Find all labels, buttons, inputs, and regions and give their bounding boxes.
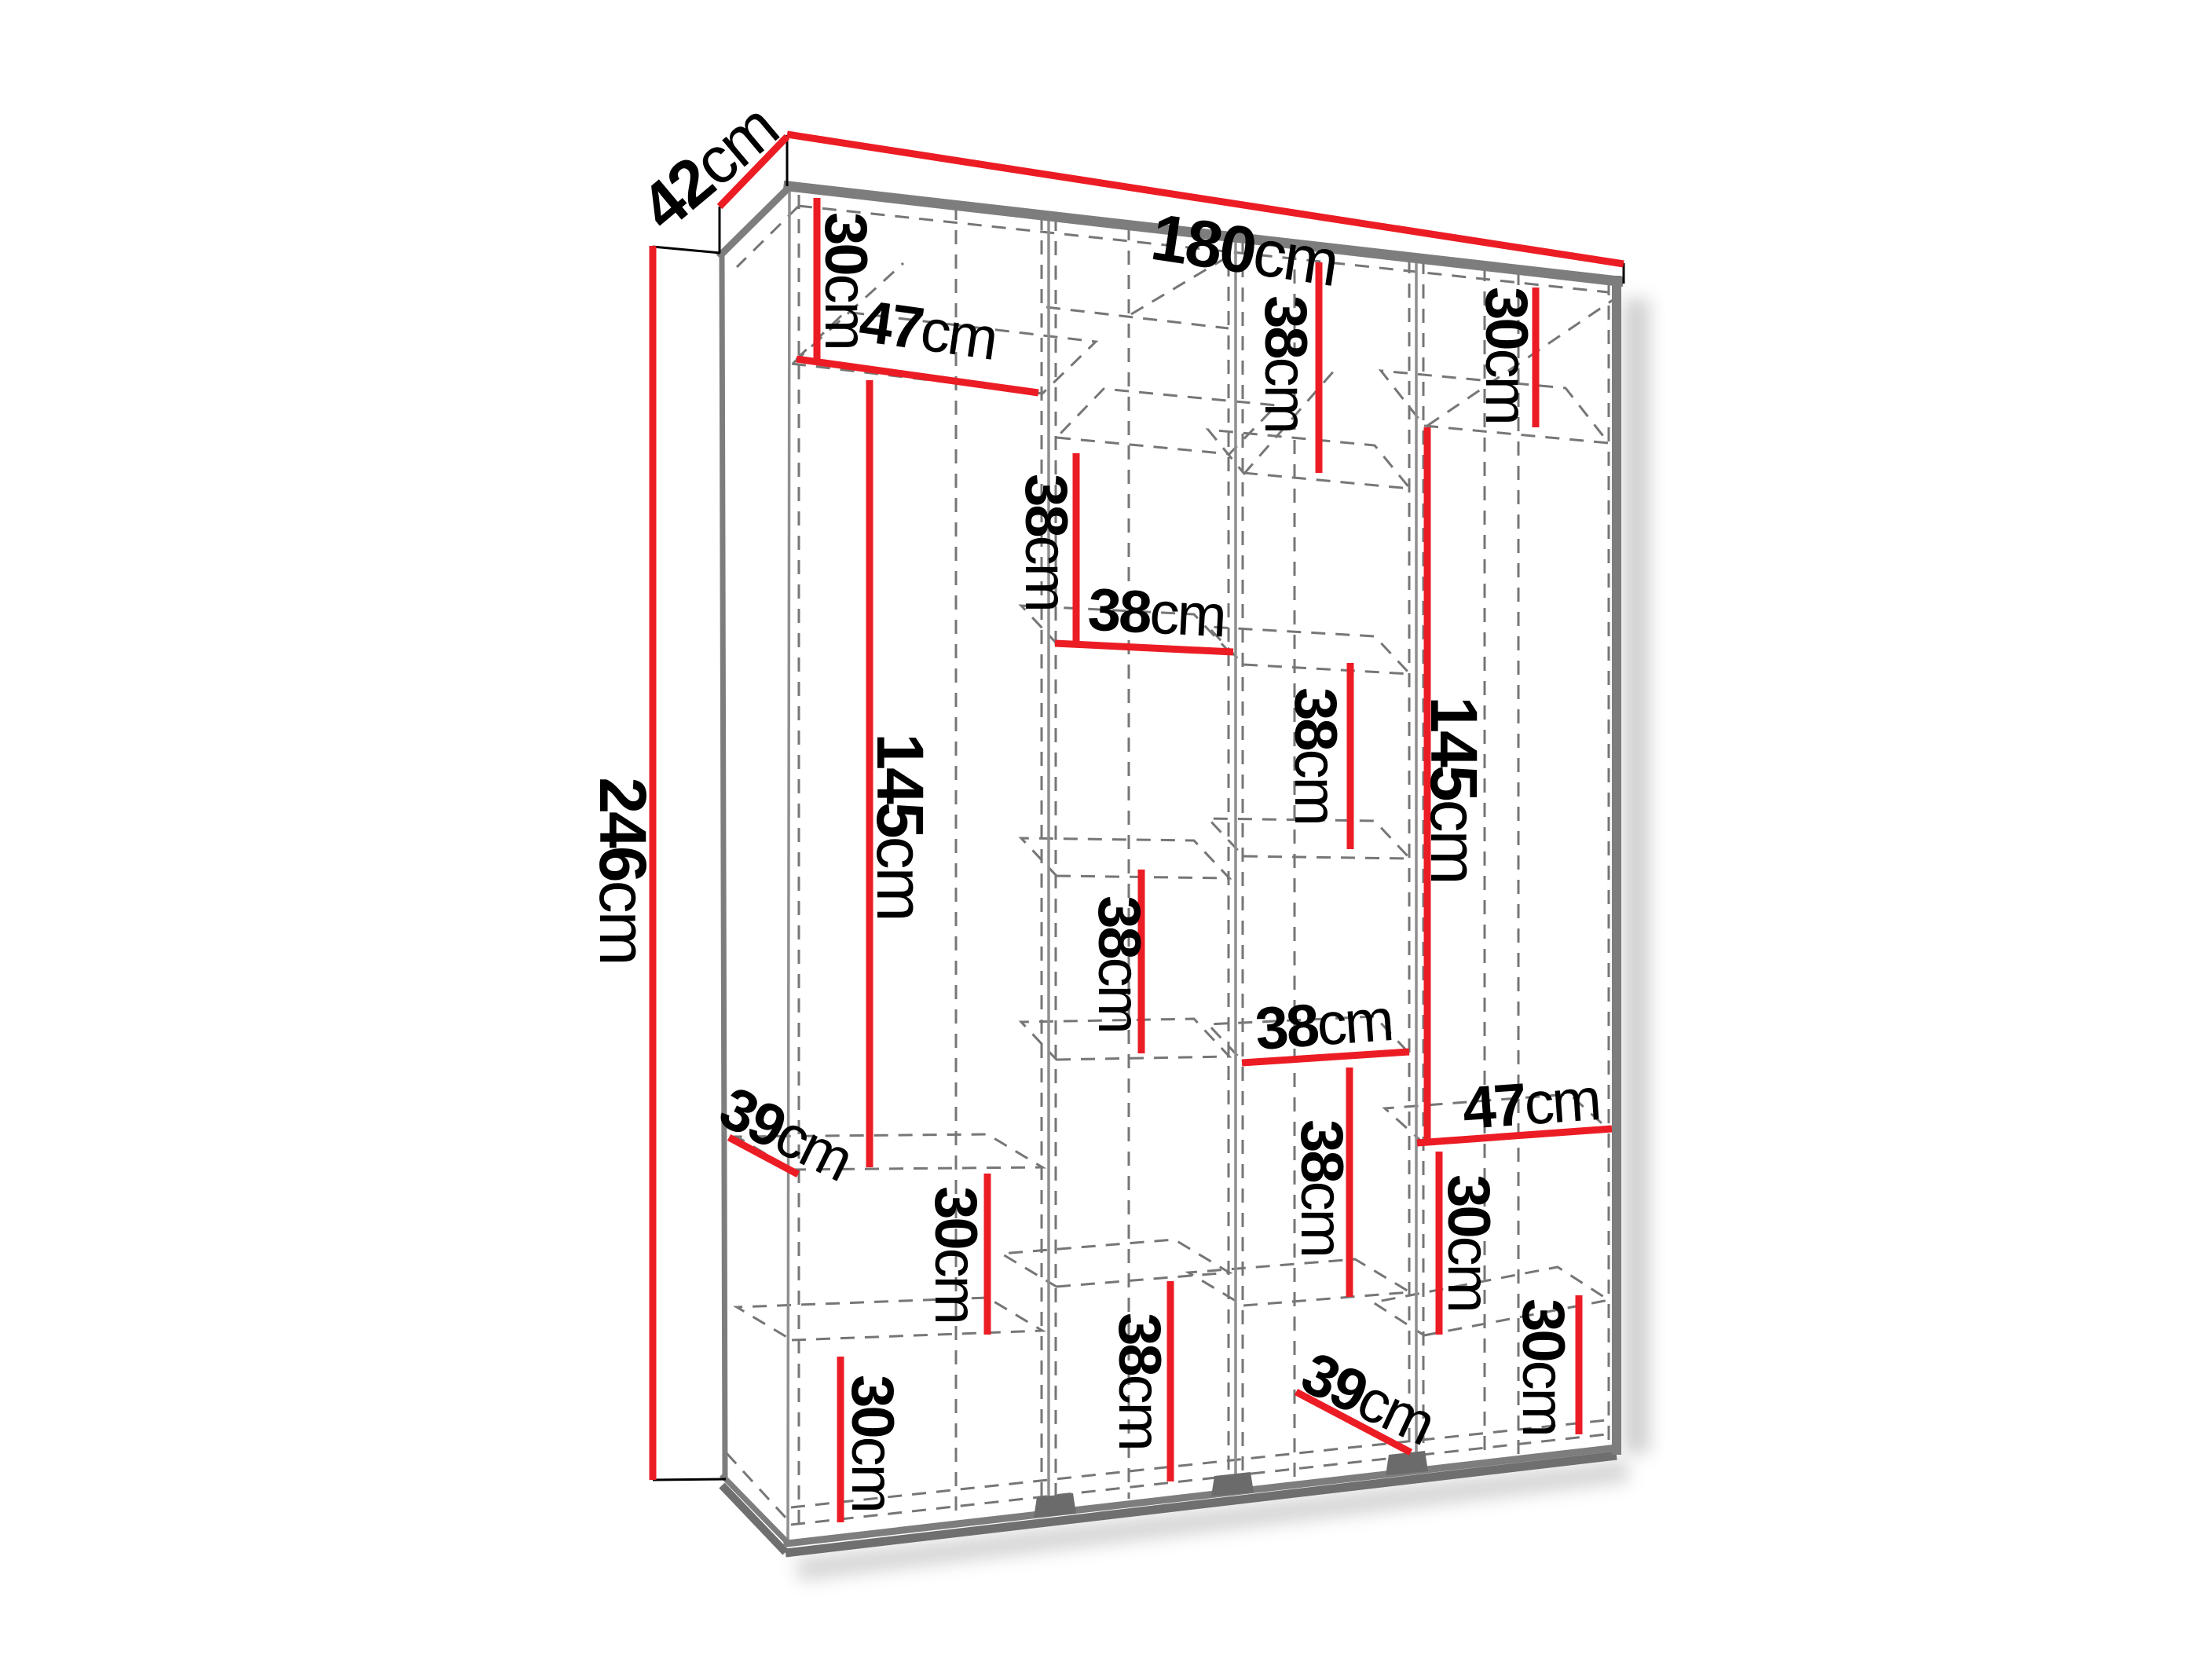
dim-label-col3-mid: 38cm [1285,687,1345,824]
dim-label-col4-width: 47cm [1461,1070,1602,1139]
dim-label-col4-bottom: 30cm [1513,1298,1573,1435]
dim-label-col3-lower: 38cm [1291,1119,1351,1256]
dim-label-col2-top: 38cm [1016,474,1075,610]
dim-label-col4-hang: 145cm [1421,696,1487,882]
dim-label-col3-width: 38cm [1254,991,1394,1060]
dim-label-col4-mid: 30cm [1438,1174,1498,1311]
dimension-line-col1-width [797,359,1038,393]
dim-label-height: 246cm [590,777,656,963]
dim-label-col4-top: 30cm [1476,287,1536,423]
dim-label-col2-width: 38cm [1086,580,1226,647]
dim-label-col2-bottom: 38cm [1109,1313,1169,1449]
dim-label-col3-top: 38cm [1255,295,1315,432]
dim-label-col1-bottom: 30cm [842,1375,902,1511]
dim-label-col2-mid: 38cm [1089,895,1148,1032]
dim-label-col1-mid: 30cm [925,1186,985,1323]
wardrobe-dimension-diagram: 180cm 42cm 246cm 30cm 47cm 145cm 39cm 30… [0,0,2212,1659]
dim-label-col1-hang: 145cm [867,733,933,919]
